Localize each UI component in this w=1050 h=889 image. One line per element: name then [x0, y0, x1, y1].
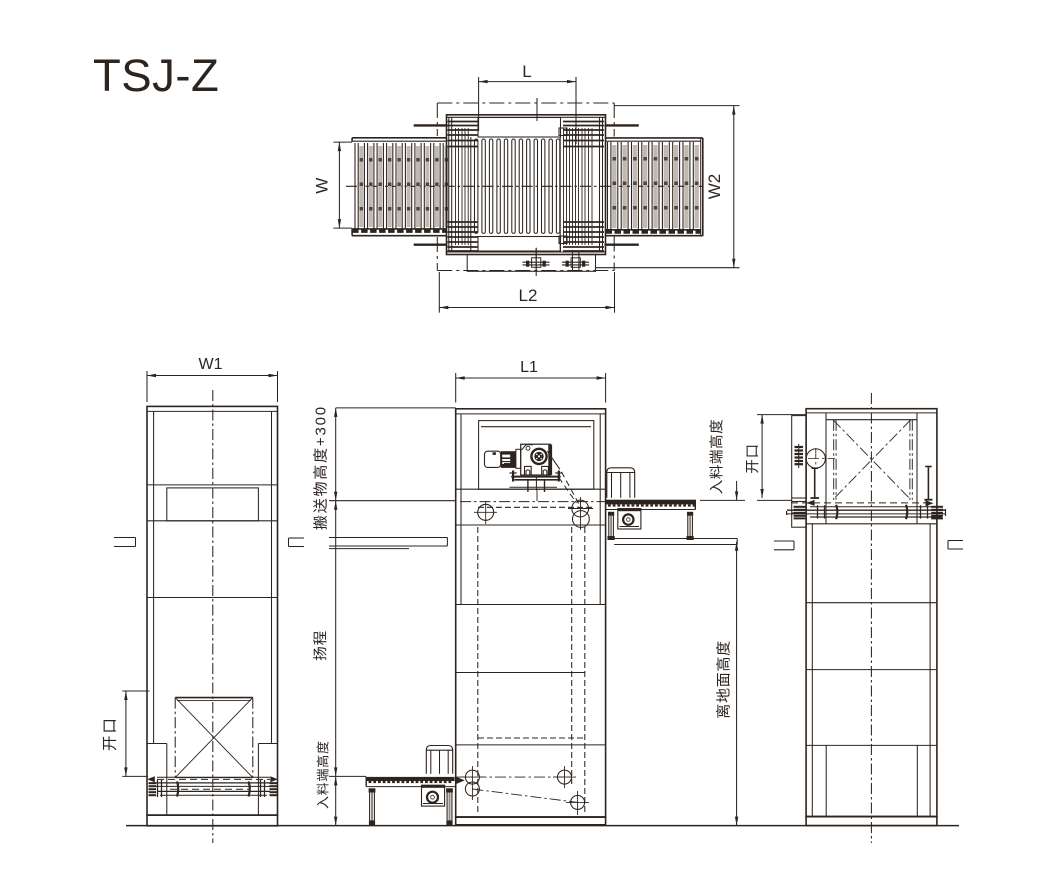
svg-text:+300: +300: [313, 405, 330, 446]
svg-text:W1: W1: [199, 356, 223, 373]
svg-text:L2: L2: [519, 286, 538, 305]
svg-text:L1: L1: [520, 359, 538, 376]
svg-text:TSJ-Z: TSJ-Z: [93, 50, 219, 101]
svg-text:W: W: [313, 178, 332, 194]
svg-text:W2: W2: [705, 174, 724, 200]
svg-text:L: L: [522, 62, 531, 81]
